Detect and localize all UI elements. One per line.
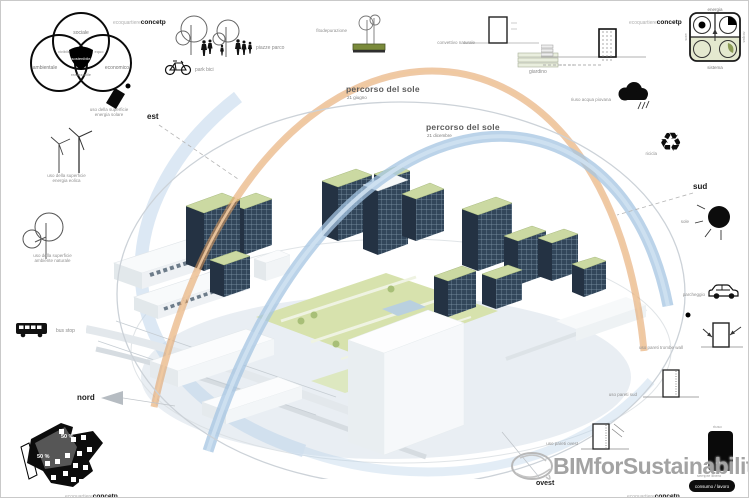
phytodepuration-label: fitodepurazione <box>301 28 347 33</box>
south-wall-icon <box>641 367 703 401</box>
west-wall-icon <box>579 421 639 453</box>
venn-left-label: ambientale <box>33 65 58 71</box>
energy-box-right-label: acqua <box>742 32 747 44</box>
est-leader-line <box>153 117 243 187</box>
summer-sun-path-label: percorso del sole <box>346 84 420 94</box>
footer-note: sempre libero <box>697 473 721 478</box>
solar-chimney-section-icon <box>541 23 651 71</box>
concept-label-top-left: ecoquartiereconcetp <box>113 11 166 29</box>
venn-overlap-left-label: vivibile <box>58 49 71 54</box>
bus-stop-label: bus stop <box>56 328 75 334</box>
recycle-label: ricicla <box>629 151 657 156</box>
wind-surface-label: uso della superficie energia eolica <box>29 173 104 184</box>
mass-top-label: riuso <box>713 424 722 429</box>
car-icon <box>707 281 743 301</box>
bike-icon <box>163 58 193 76</box>
energy-box-bottom-label: sistema <box>707 65 723 70</box>
phytodepuration-icon <box>349 14 389 56</box>
park-label: piazze parco <box>256 45 284 51</box>
bus-icon <box>15 321 53 339</box>
parking-label: parcheggio <box>657 292 705 297</box>
venn-top-label: sociale <box>73 30 89 36</box>
energy-box-left-label: sole <box>685 33 688 41</box>
sud-leader-line <box>613 187 697 221</box>
rain-cloud-icon <box>613 81 655 111</box>
plan-pct-gray: 50 % <box>37 454 50 460</box>
eco-district-concept-diagram: percorso del sole 21 giugno percorso del… <box>0 0 749 498</box>
natural-convection-label: convettivo naturale <box>425 40 475 45</box>
trombe-wall-label: uso pareti trombe wall <box>625 345 683 350</box>
concept-label-bottom-right: ecoquartiereconcetp <box>627 485 680 498</box>
footer-pill: consumo / lavoro <box>689 480 735 492</box>
solar-surface-label: uso della superficie energia solare <box>78 107 140 118</box>
sun-dot-icon <box>699 22 706 29</box>
venn-overlap-right-label: equo <box>95 49 105 54</box>
venn-center-label: sostenibile <box>72 56 92 61</box>
sun-icon <box>693 199 741 244</box>
natural-environment-label: uso della superficie ambiente naturale <box>15 253 90 264</box>
recycle-icon: ♻ <box>659 129 682 155</box>
sun-label: sole <box>661 219 689 224</box>
energy-box-top-label: energia <box>707 7 723 12</box>
south-wall-label: uso pareti sud <box>585 392 637 397</box>
solar-panel-icon <box>101 81 137 109</box>
bike-park-label: park bici <box>195 67 214 73</box>
winter-sun-path-label: percorso del sole <box>426 122 500 132</box>
summer-sun-path-date: 21 giugno <box>347 95 367 100</box>
nord-arrow <box>99 389 179 411</box>
winter-sun-path-date: 21 dicembre <box>427 133 452 138</box>
cloud-wedge-icon <box>728 17 737 26</box>
venn-right-label: economico <box>105 65 129 71</box>
wind-turbine-icon <box>39 127 97 175</box>
ovest-leader-line <box>499 429 544 479</box>
rainwater-reuse-label: riuso acqua piovana <box>553 97 611 102</box>
park-trees-people-icon <box>166 13 261 61</box>
venn-overlap-bottom-label: realizzabile <box>71 72 92 77</box>
trombe-wall-icon <box>683 311 745 351</box>
compass-nord: nord <box>77 393 95 402</box>
energy-system-diagram: energia sistema sole acqua <box>685 5 747 77</box>
compass-ovest: ovest <box>536 480 554 487</box>
plan-pct-black: 50 % <box>61 434 74 440</box>
site-plan-50-50: 50 % 50 % <box>15 413 125 495</box>
